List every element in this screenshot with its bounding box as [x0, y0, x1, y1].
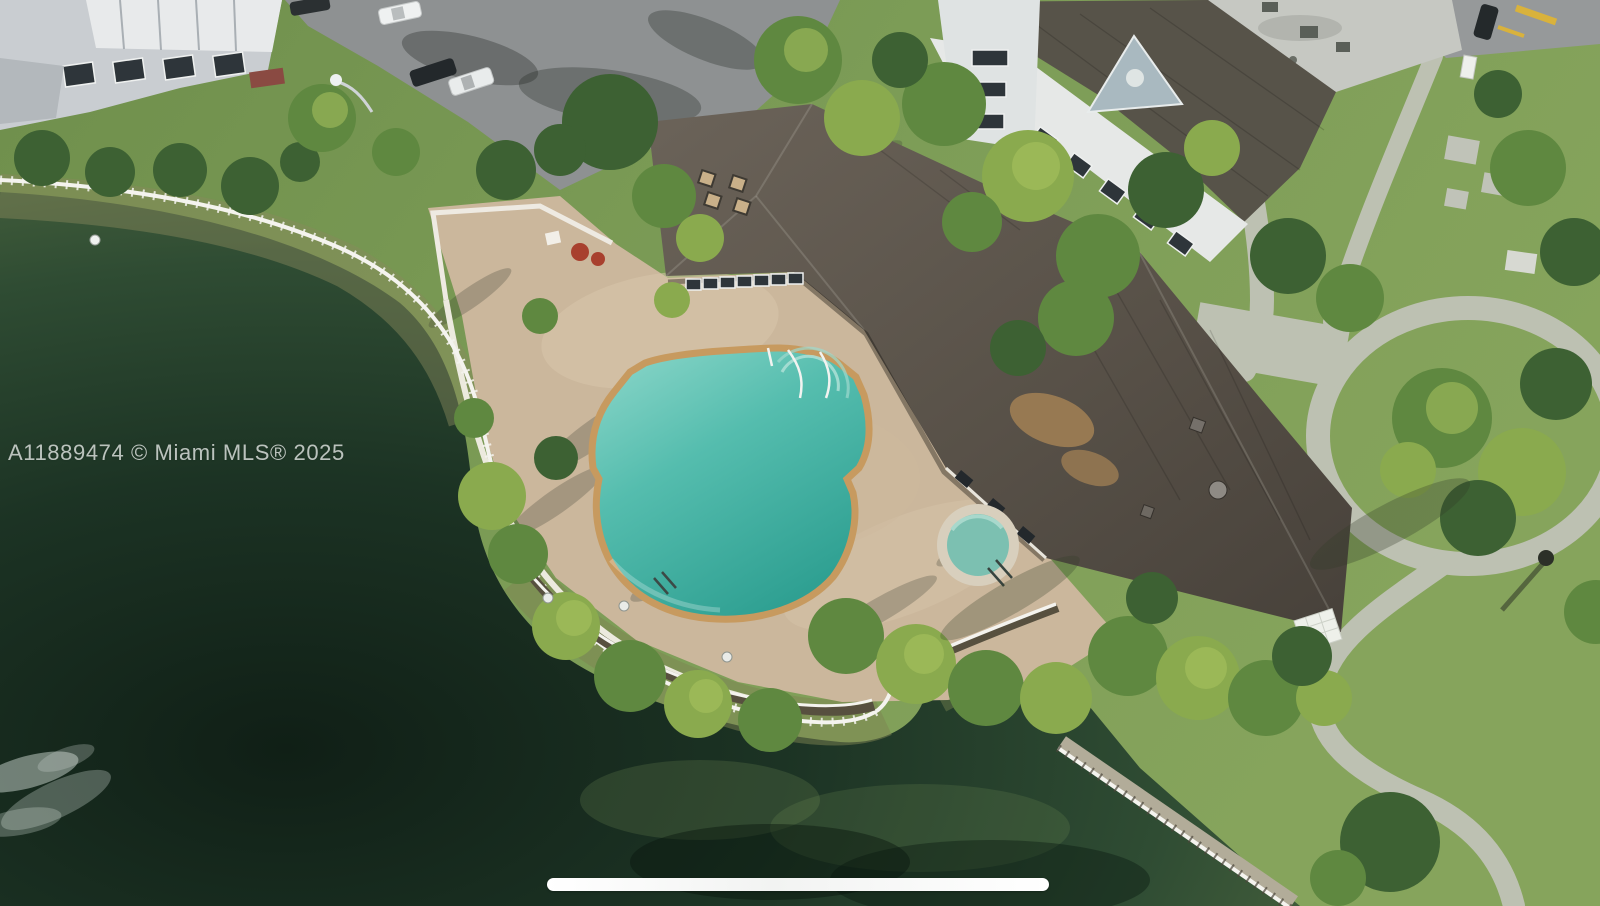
globe-lamp — [90, 235, 100, 245]
balcony-band — [86, 0, 282, 52]
car-windshield — [391, 6, 405, 20]
entry-canopy — [0, 58, 64, 124]
park-lamp — [1538, 550, 1554, 566]
swimming-pool — [592, 348, 869, 619]
gable-emblem — [1126, 69, 1144, 87]
bougainvillea-planter — [571, 243, 589, 261]
aerial-photo-viewer: A11889474 © Miami MLS® 2025 — [0, 0, 1600, 906]
roof-vent-round — [1209, 481, 1227, 499]
home-indicator-bar[interactable] — [547, 878, 1049, 891]
spa-hot-tub — [937, 504, 1019, 586]
deck-globe-lamp — [543, 593, 553, 603]
mls-watermark: A11889474 © Miami MLS® 2025 — [8, 440, 345, 466]
